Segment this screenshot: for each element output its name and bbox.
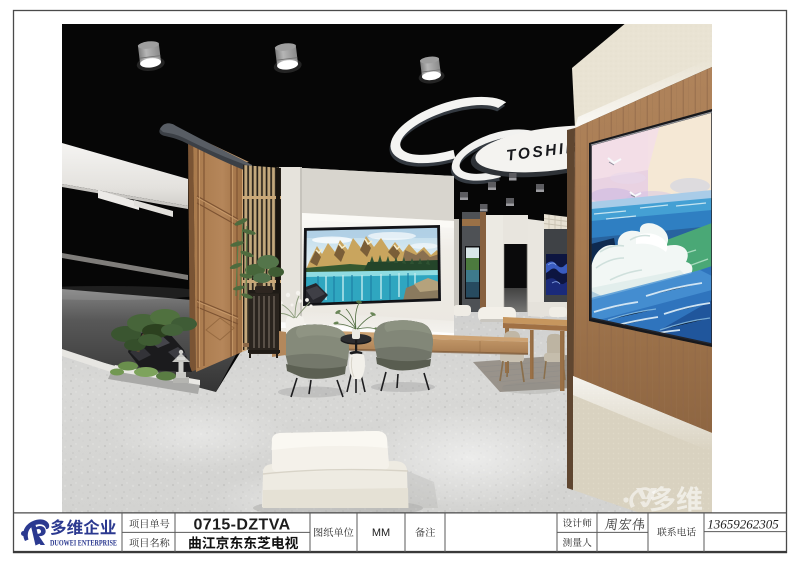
svg-text:13659262305: 13659262305 [707,517,779,532]
svg-text:0715-DZTVA: 0715-DZTVA [193,517,290,534]
svg-text:MM: MM [372,527,390,539]
svg-text:DUOWEI ENTERPRISE: DUOWEI ENTERPRISE [50,538,117,548]
